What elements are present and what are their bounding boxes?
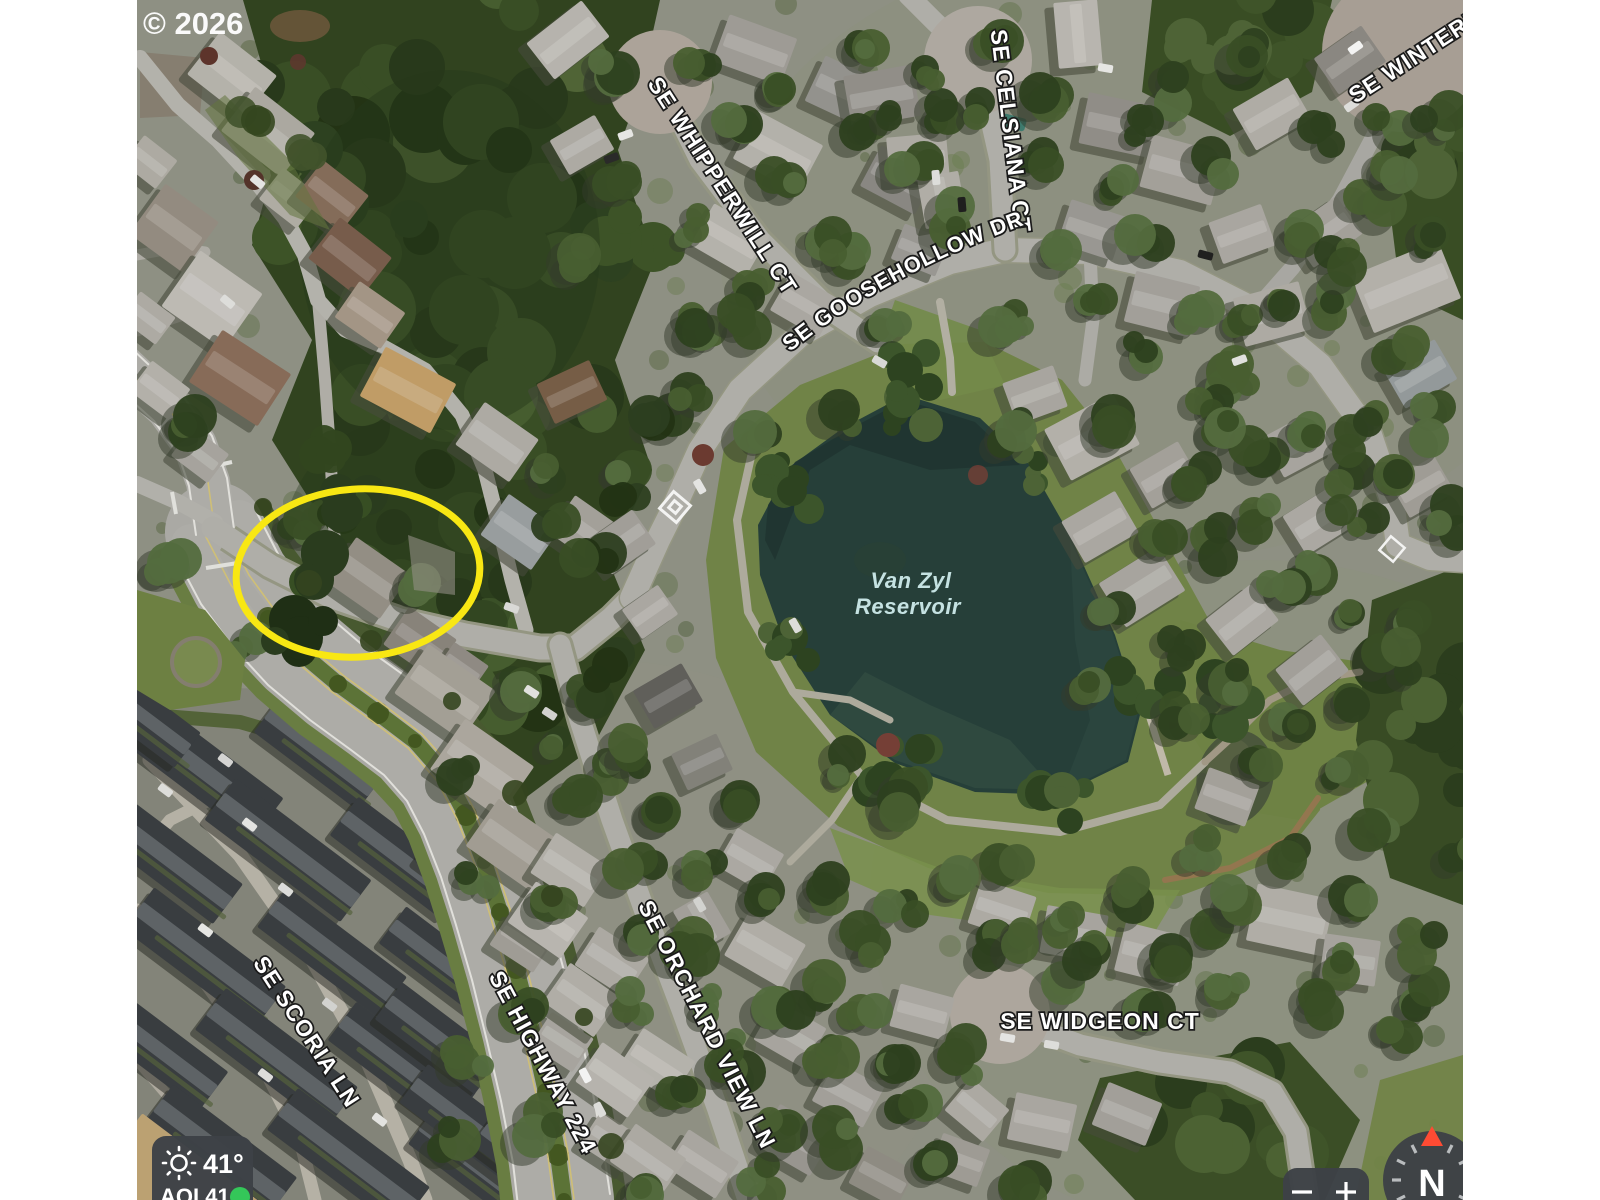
svg-text:41°: 41° xyxy=(203,1149,244,1179)
svg-text:Van Zyl: Van Zyl xyxy=(871,568,952,593)
svg-text:SE WIDGEON CT: SE WIDGEON CT xyxy=(1000,1008,1200,1034)
svg-text:AQI 41: AQI 41 xyxy=(160,1184,230,1200)
svg-text:N: N xyxy=(1418,1163,1445,1200)
svg-text:Reservoir: Reservoir xyxy=(855,594,962,619)
svg-text:© 2026: © 2026 xyxy=(143,6,243,41)
